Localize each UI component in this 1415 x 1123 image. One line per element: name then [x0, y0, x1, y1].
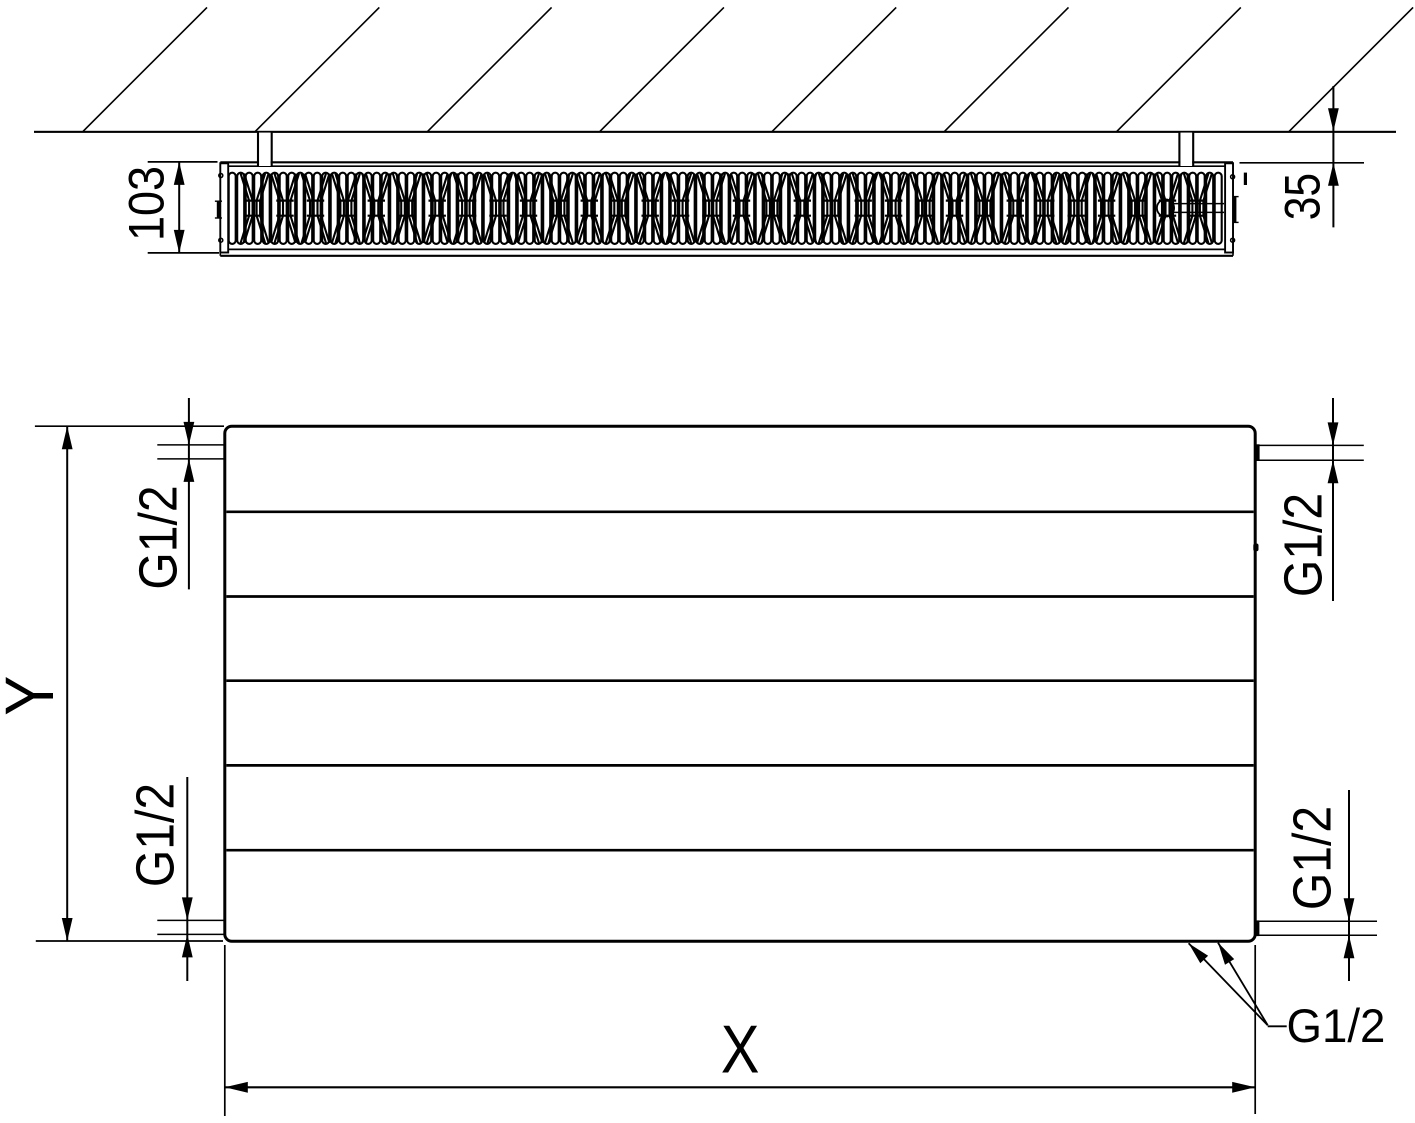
- svg-text:35: 35: [1274, 173, 1330, 220]
- svg-text:G1/2: G1/2: [1282, 806, 1342, 910]
- svg-text:G1/2: G1/2: [125, 783, 185, 887]
- svg-text:X: X: [721, 1012, 760, 1087]
- svg-text:G1/2: G1/2: [1287, 999, 1386, 1052]
- svg-text:G1/2: G1/2: [1273, 493, 1333, 597]
- svg-text:103: 103: [119, 166, 175, 241]
- svg-text:Y: Y: [0, 676, 68, 716]
- svg-text:G1/2: G1/2: [128, 485, 188, 589]
